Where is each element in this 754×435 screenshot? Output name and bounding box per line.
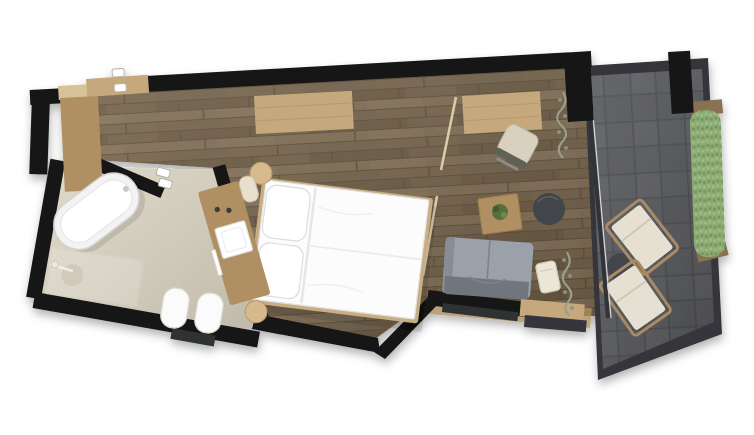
terrace [584,58,729,380]
wall-terrace-stub-right [668,51,694,114]
hedge-planter [689,109,725,257]
entry-door-handle-inner [114,83,126,92]
pillow-top [261,184,311,242]
plan-group [26,51,729,380]
wardrobe-body [60,96,103,192]
desk [462,91,542,134]
desk-top [462,91,542,134]
wall-left [29,96,50,175]
table-plant-leaf-2 [501,212,507,218]
pouf [533,193,565,225]
pouf-body [533,193,565,225]
wardrobe [60,96,103,192]
table-plant [492,204,508,220]
sideboard-top [254,91,354,134]
table-plant-leaf-1 [493,206,499,212]
entry-door-handle-outer [112,68,124,77]
floor-plan [0,0,754,435]
sideboard [254,91,354,134]
sofa [442,237,534,300]
shower-head [51,261,59,269]
floor-plan-canvas [0,0,754,435]
wall-terrace-stub-left [564,56,594,121]
